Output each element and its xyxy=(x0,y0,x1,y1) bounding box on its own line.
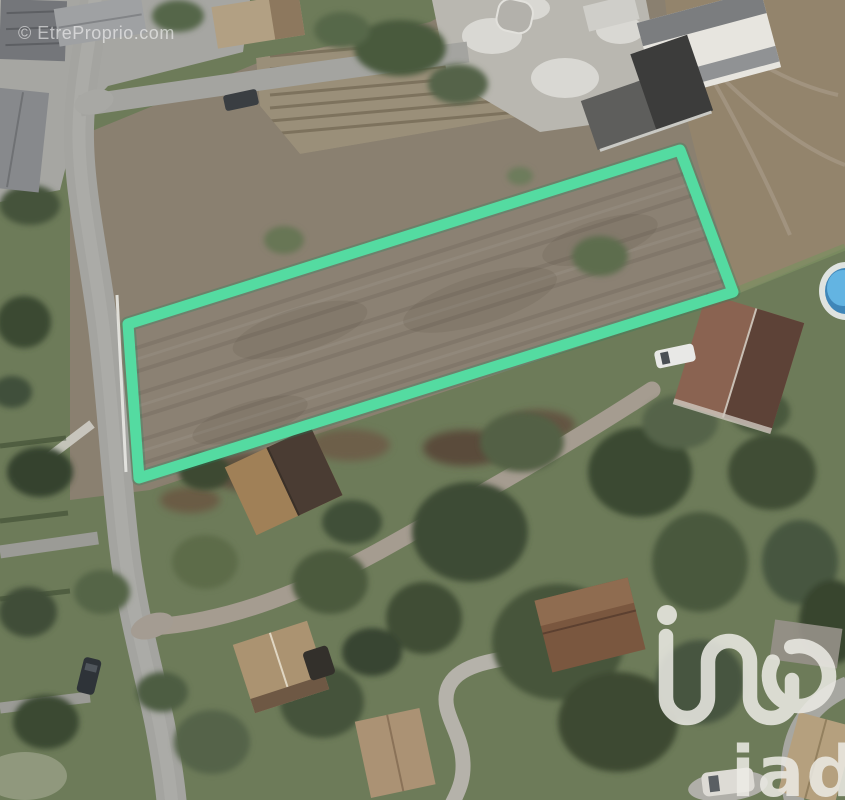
iad-logo-text: iad xyxy=(731,731,845,800)
aerial-photo: © EtreProprio.com iad xyxy=(0,0,845,800)
watermark-text: © EtreProprio.com xyxy=(18,23,175,43)
iad-monogram-dot xyxy=(657,605,677,625)
